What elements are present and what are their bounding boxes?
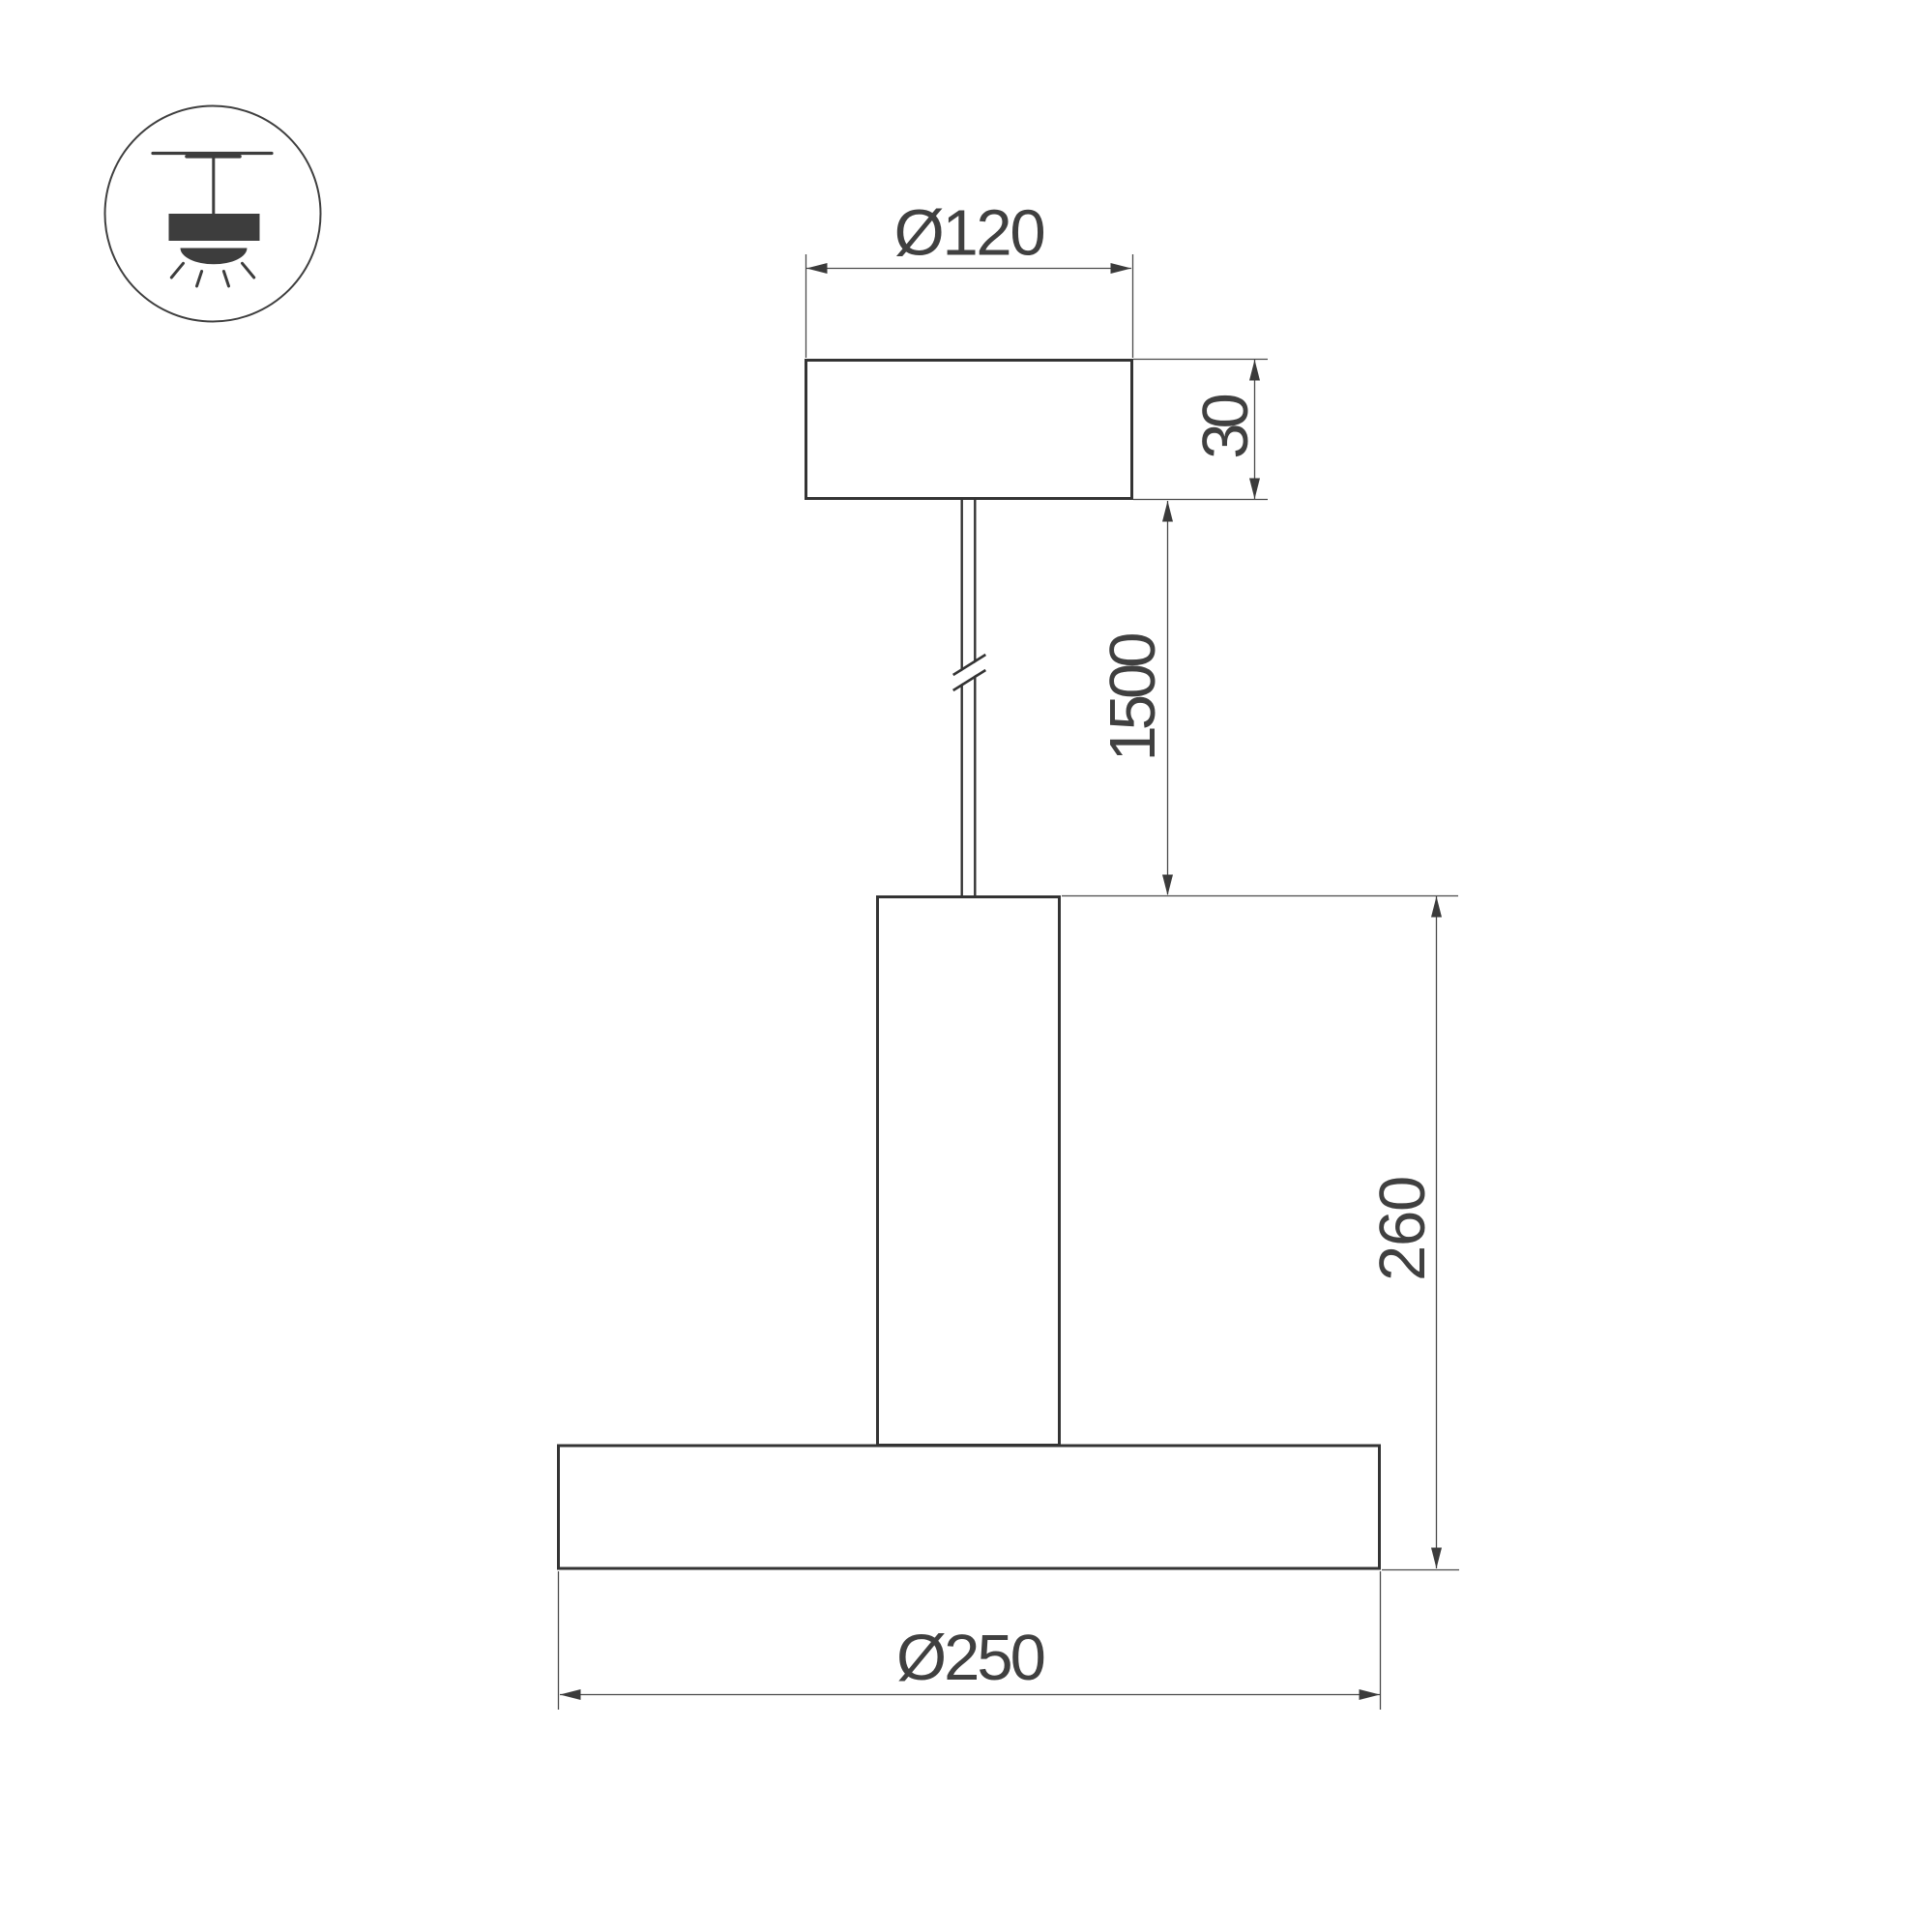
svg-text:Ø120: Ø120: [894, 197, 1044, 270]
svg-text:260: 260: [1366, 1177, 1439, 1281]
svg-text:30: 30: [1189, 395, 1262, 459]
svg-text:Ø250: Ø250: [896, 1622, 1044, 1694]
svg-text:1500: 1500: [1097, 634, 1169, 762]
